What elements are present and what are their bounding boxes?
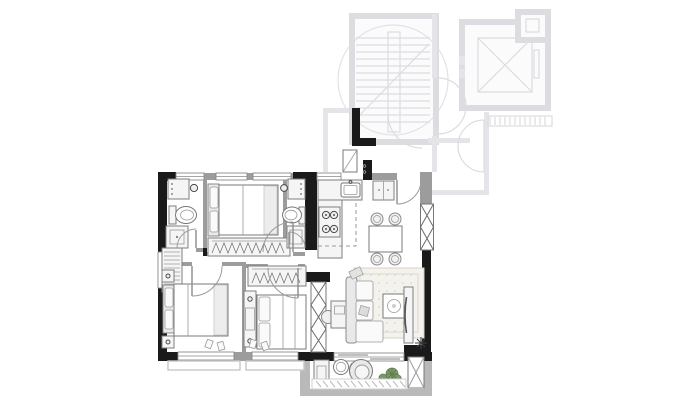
shower-icon: [287, 226, 305, 248]
railing-hatch: [312, 379, 406, 389]
floor-plan: [0, 0, 694, 411]
bed-icon: [208, 184, 278, 236]
bay-window-sill: [168, 361, 304, 370]
chair-icon: [371, 253, 383, 265]
bedroom-1: [208, 184, 290, 256]
nightstand-icon: [162, 270, 174, 282]
toilet-icon: [283, 207, 306, 224]
shoe-cabinet-icon: [343, 150, 357, 172]
balcony-outer-wall: [300, 389, 432, 396]
column-x-hatch: [408, 357, 424, 388]
chair-icon: [371, 213, 383, 225]
dining-table-icon: [369, 226, 402, 252]
chair-icon: [389, 213, 401, 225]
sliding-door: [334, 353, 404, 361]
chair-icon: [389, 253, 401, 265]
elevator-machine-box: [518, 12, 548, 40]
stove-icon: [319, 207, 340, 237]
paper-background: [0, 0, 694, 411]
bed-icon: [257, 295, 306, 349]
nightstand-icon: [162, 336, 174, 348]
tv-icon: [404, 287, 413, 343]
column-x-hatch: [421, 204, 434, 250]
desk-icon: [331, 301, 348, 328]
round-table-icon: [334, 360, 349, 375]
bed-icon: [163, 284, 228, 336]
sink-icon: [341, 181, 360, 197]
fridge-icon: [373, 181, 394, 200]
toilet-icon: [169, 206, 197, 224]
bedroom-3: [244, 266, 306, 351]
floor-plan-canvas: [0, 0, 694, 411]
dresser-icon: [244, 291, 256, 347]
coffee-table-icon: [383, 294, 405, 318]
wardrobe-icon: [208, 238, 290, 256]
elevator-icon: [459, 12, 548, 108]
